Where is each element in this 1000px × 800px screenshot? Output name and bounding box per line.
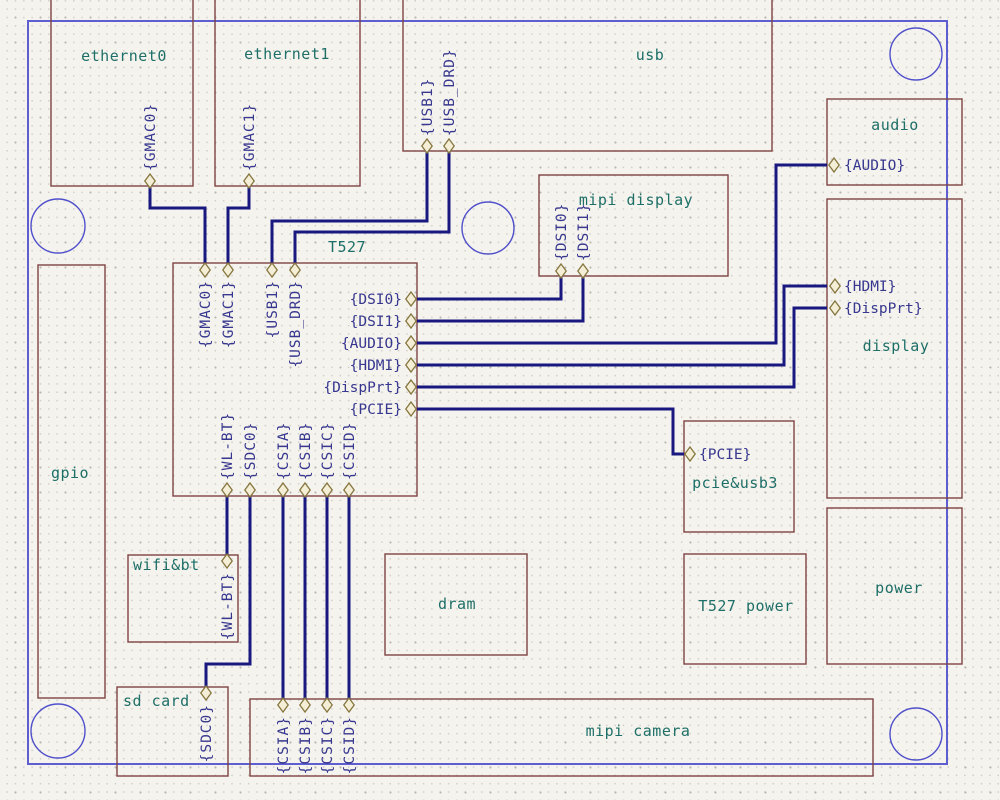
sheet-pin-diamond-mipi-camera[interactable] — [344, 698, 354, 712]
sheet-pin-diamond-t527[interactable] — [200, 263, 210, 277]
sheet-pin-label-usb[interactable]: {USB_DRD} — [442, 48, 458, 136]
sheet-pin-diamond-t527[interactable] — [406, 402, 416, 416]
sheet-pin-label-t527[interactable]: {DSI1} — [350, 314, 402, 330]
sheet-pin-diamond-t527[interactable] — [278, 483, 288, 497]
sheet-pin-label-t527[interactable]: {HDMI} — [350, 358, 402, 374]
sheet-pin-diamond-mipi-camera[interactable] — [322, 698, 332, 712]
sheet-pin-diamond-audio[interactable] — [829, 158, 839, 172]
sheet-pin-label-sd-card[interactable]: {SDC0} — [199, 704, 215, 762]
sheet-pin-label-t527[interactable]: {SDC0} — [243, 422, 259, 480]
mounting-hole[interactable] — [31, 704, 85, 758]
sheet-pin-diamond-sd-card[interactable] — [201, 686, 211, 700]
sheet-pin-label-ethernet0[interactable]: {GMAC0} — [143, 103, 159, 171]
sheet-pin-label-t527[interactable]: {GMAC1} — [221, 280, 237, 348]
sheet-pin-label-mipi-camera[interactable]: {CSID} — [342, 716, 358, 774]
sheet-pin-label-display[interactable]: {DispPrt} — [844, 301, 923, 317]
wire-gmac1[interactable] — [228, 186, 249, 263]
sheet-pin-diamond-mipi-camera[interactable] — [278, 698, 288, 712]
mounting-hole[interactable] — [31, 199, 85, 253]
sheet-pin-label-t527[interactable]: {AUDIO} — [341, 336, 402, 352]
wire-gmac0[interactable] — [150, 186, 205, 263]
sheet-pin-label-wifi-bt[interactable]: {WL-BT} — [220, 572, 236, 640]
block-label-audio[interactable]: audio — [871, 116, 919, 134]
block-usb[interactable] — [403, 0, 772, 151]
block-ethernet0[interactable] — [51, 0, 193, 186]
sheet-pin-diamond-t527[interactable] — [406, 358, 416, 372]
sheet-pin-label-t527[interactable]: {DSI0} — [350, 292, 402, 308]
sheet-pin-label-t527[interactable]: {USB_DRD} — [288, 280, 304, 368]
sheet-pin-label-mipi-camera[interactable]: {CSIA} — [276, 716, 292, 774]
sheet-pin-label-t527[interactable]: {CSIC} — [320, 422, 336, 480]
sheet-pin-diamond-t527[interactable] — [322, 483, 332, 497]
block-label-usb[interactable]: usb — [636, 46, 665, 64]
mounting-hole[interactable] — [462, 202, 514, 254]
sheet-pin-label-mipi-camera[interactable]: {CSIC} — [320, 716, 336, 774]
block-ethernet1[interactable] — [215, 0, 360, 186]
sheet-pin-diamond-t527[interactable] — [406, 336, 416, 350]
sheet-pin-diamond-t527[interactable] — [406, 314, 416, 328]
sheet-pin-label-mipi-camera[interactable]: {CSIB} — [298, 716, 314, 774]
sheet-pin-label-mipi-display[interactable]: {DSI1} — [576, 203, 592, 261]
board-border[interactable] — [28, 21, 947, 764]
sheet-pin-label-t527[interactable]: {PCIE} — [350, 402, 402, 418]
sheet-pin-diamond-t527[interactable] — [223, 263, 233, 277]
mounting-hole[interactable] — [890, 28, 942, 80]
sheet-pin-diamond-t527[interactable] — [222, 483, 232, 497]
sheet-pin-diamond-display[interactable] — [830, 279, 840, 293]
sheet-pin-label-t527[interactable]: {GMAC0} — [198, 280, 214, 348]
schematic-svg: ethernet0ethernet1usbaudiomipi displaydi… — [0, 0, 1000, 800]
block-label-ethernet0[interactable]: ethernet0 — [81, 47, 167, 65]
sheet-pin-label-t527[interactable]: {CSIA} — [276, 422, 292, 480]
sheet-pin-diamond-t527[interactable] — [300, 483, 310, 497]
mounting-hole[interactable] — [890, 708, 942, 760]
sheet-pin-diamond-wifi-bt[interactable] — [222, 554, 232, 568]
block-label-power[interactable]: power — [875, 579, 923, 597]
sheet-pin-label-ethernet1[interactable]: {GMAC1} — [242, 103, 258, 171]
block-label-dram[interactable]: dram — [438, 595, 476, 613]
block-label-mipi-camera[interactable]: mipi camera — [586, 722, 691, 740]
sheet-pin-diamond-t527[interactable] — [344, 483, 354, 497]
sheet-pin-diamond-t527[interactable] — [290, 263, 300, 277]
block-label-display[interactable]: display — [863, 337, 930, 355]
block-label-gpio[interactable]: gpio — [51, 464, 89, 482]
sheet-pin-diamond-mipi-camera[interactable] — [300, 698, 310, 712]
block-label-sd-card[interactable]: sd card — [123, 692, 190, 710]
wire-dsi0[interactable] — [417, 276, 561, 299]
block-label-mipi-display[interactable]: mipi display — [579, 191, 693, 209]
sheet-pin-diamond-display[interactable] — [830, 301, 840, 315]
sheet-pin-label-t527[interactable]: {USB1} — [265, 280, 281, 338]
block-label-t527-power[interactable]: T527 power — [698, 597, 793, 615]
sheet-pin-label-mipi-display[interactable]: {DSI0} — [554, 203, 570, 261]
sheet-pin-label-pcie-usb3[interactable]: {PCIE} — [699, 447, 751, 463]
sheet-pin-label-t527[interactable]: {CSID} — [342, 422, 358, 480]
block-label-t527[interactable]: T527 — [328, 238, 366, 256]
sheet-pin-label-t527[interactable]: {DispPrt} — [323, 380, 402, 396]
sheet-pin-diamond-t527[interactable] — [267, 263, 277, 277]
block-label-pcie-usb3[interactable]: pcie&usb3 — [692, 474, 778, 492]
sheet-pin-label-audio[interactable]: {AUDIO} — [844, 158, 905, 174]
sheet-pin-label-usb[interactable]: {USB1} — [420, 78, 436, 136]
sheet-pin-label-display[interactable]: {HDMI} — [844, 279, 896, 295]
sheet-pin-diamond-t527[interactable] — [245, 483, 255, 497]
wire-pcie[interactable] — [417, 409, 684, 454]
block-label-wifi-bt[interactable]: wifi&bt — [133, 556, 200, 574]
sheet-pin-label-t527[interactable]: {CSIB} — [298, 422, 314, 480]
sheet-pin-diamond-pcie-usb3[interactable] — [685, 447, 695, 461]
block-label-ethernet1[interactable]: ethernet1 — [244, 45, 330, 63]
schematic-canvas: ethernet0ethernet1usbaudiomipi displaydi… — [0, 0, 1000, 800]
sheet-pin-diamond-t527[interactable] — [406, 292, 416, 306]
sheet-pin-diamond-t527[interactable] — [406, 380, 416, 394]
sheet-pin-label-t527[interactable]: {WL-BT} — [220, 412, 236, 480]
